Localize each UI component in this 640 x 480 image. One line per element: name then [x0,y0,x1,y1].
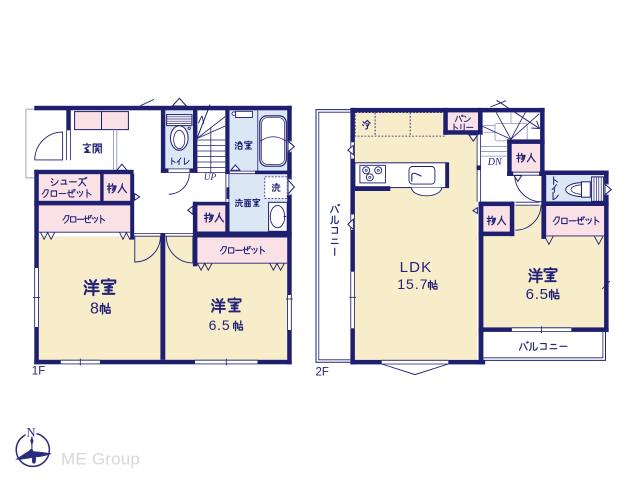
svg-text:DN: DN [487,157,503,168]
svg-text:6.5: 6.5 [209,317,231,333]
svg-text:15.7: 15.7 [397,276,428,292]
svg-text:6.5: 6.5 [526,286,549,303]
svg-text:8: 8 [90,300,99,317]
svg-text:N: N [26,425,35,439]
svg-text:ME Group: ME Group [61,450,140,469]
svg-text:2F: 2F [316,366,329,378]
svg-text:1F: 1F [32,365,45,377]
svg-text:UP: UP [204,172,217,182]
svg-text:LDK: LDK [400,259,433,276]
